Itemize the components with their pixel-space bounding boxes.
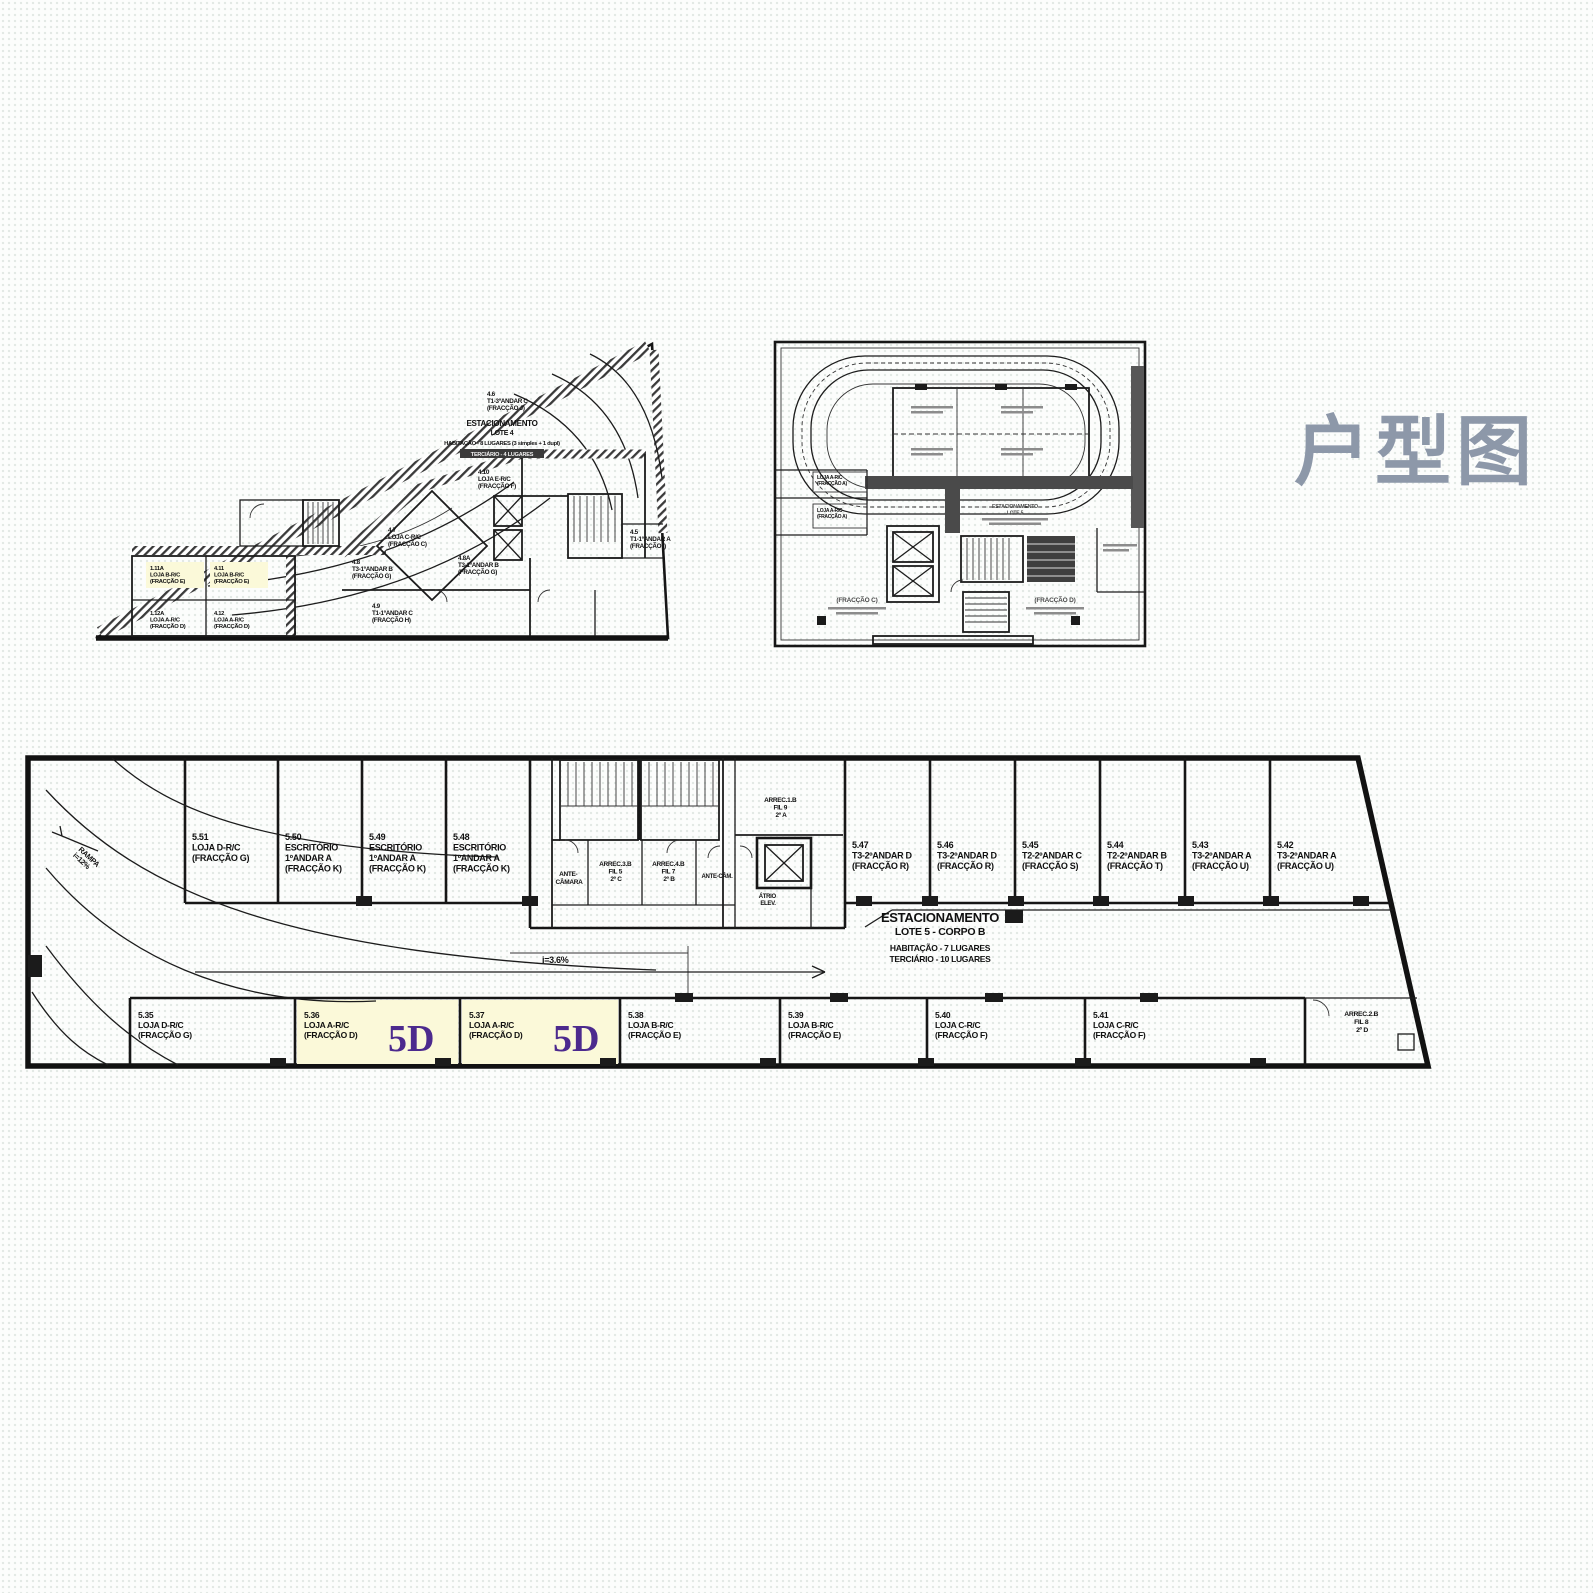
unit-label: 5.50 ESCRITÓRIO 1ºANDAR A (FRACÇÃO K) bbox=[285, 832, 342, 874]
unit-label: 5.51 LOJA D-R/C (FRACÇÃO G) bbox=[192, 832, 249, 863]
note-line: LOTE 5 - CORPO B bbox=[895, 926, 986, 938]
unit-label: 4.6 T1-3ºANDAR C (FRACÇÃO J) bbox=[487, 391, 529, 412]
unit-label: 5.45 T2-2ºANDAR C (FRACÇÃO S) bbox=[1022, 840, 1084, 871]
note-line: HABITAÇÃO - 8 LUGARES (3 simples + 1 dup… bbox=[444, 440, 560, 447]
unit-label: 5.48 ESCRITÓRIO 1ºANDAR A (FRACÇÃO K) bbox=[453, 832, 510, 874]
lote5-right-rooms bbox=[1097, 528, 1145, 592]
note-line: ESTACIONAMENTO bbox=[466, 419, 537, 428]
unit-label: 5.43 T3-2ºANDAR A (FRACÇÃO U) bbox=[1192, 840, 1253, 871]
lote5-left-rooms: LOJA A-R/C (FRACÇÃO A) LOJA A-R/C (FRACÇ… bbox=[775, 470, 867, 535]
unit-label: 5.42 T3-2ºANDAR A (FRACÇÃO U) bbox=[1277, 840, 1338, 871]
unit-label: 5.46 T3-2ºANDAR D (FRACÇÃO R) bbox=[937, 840, 999, 871]
ramp-arrow bbox=[52, 826, 98, 851]
stairs bbox=[560, 760, 638, 840]
room-label: ARREC.3.B FIL 5 2º C bbox=[599, 861, 633, 883]
fraction-label: (FRACÇÃO D) bbox=[1034, 595, 1075, 604]
corpo-b-parking-note: ESTACIONAMENTO LOTE 5 - CORPO B HABITAÇÃ… bbox=[881, 910, 999, 964]
unit-label: 4.8 T3-1ºANDAR B (FRACÇÃO G) bbox=[352, 559, 394, 580]
page-title: 户型图 bbox=[1294, 414, 1574, 490]
shop-label: LOJA A-R/C (FRACÇÃO A) bbox=[817, 475, 847, 487]
unit-label: 4.10 LOJA E-R/C (FRACÇÃO F) bbox=[478, 469, 516, 490]
note-line: TERCIÁRIO - 10 LUGARES bbox=[889, 954, 991, 964]
fraction-label: (FRACÇÃO C) bbox=[836, 595, 877, 604]
unit-label: 5.38 LOJA B-R/C (FRACÇÃO E) bbox=[628, 1010, 681, 1040]
unit-label: 5.35 LOJA D-R/C (FRACÇÃO G) bbox=[138, 1010, 192, 1040]
lote4-unit-labels: 4.6 T1-3ºANDAR C (FRACÇÃO J) 4.10 LOJA E… bbox=[150, 391, 672, 630]
unit-tag-5d: 5D bbox=[388, 1018, 434, 1060]
wall-strip bbox=[1131, 366, 1144, 528]
ramp-label: RAMPA i=12% bbox=[71, 845, 102, 876]
plan-lote4: ESTACIONAMENTO LOTE 4 HABITAÇÃO - 8 LUGA… bbox=[90, 328, 690, 663]
unit-label: 5.39 LOJA B-R/C (FRACÇÃO E) bbox=[788, 1010, 841, 1040]
unit-label: 5.40 LOJA C-R/C (FRACÇÃO F) bbox=[935, 1010, 988, 1040]
stairs bbox=[568, 494, 622, 558]
unit-label: 4.9 T1-1ºANDAR C (FRACÇÃO H) bbox=[372, 603, 414, 624]
room-label: ÁTRIO ELEV. bbox=[759, 893, 778, 907]
room-label: ARREC.2.B FIL 8 2º D bbox=[1344, 1011, 1380, 1034]
note-line: TERCIÁRIO - 4 LUGARES bbox=[471, 451, 534, 458]
note-line: ESTACIONAMENTO bbox=[992, 504, 1038, 510]
note-line: HABITAÇÃO - 7 LUGARES bbox=[890, 943, 991, 953]
stairs bbox=[961, 536, 1023, 582]
unit-label: 5.41 LOJA C-R/C (FRACÇÃO F) bbox=[1093, 1010, 1146, 1040]
plan-lote5: LOJA A-R/C (FRACÇÃO A) LOJA A-R/C (FRACÇ… bbox=[765, 330, 1155, 655]
stairs bbox=[641, 760, 719, 840]
room-label: ARREC.4.B FIL 7 2º B bbox=[652, 861, 686, 883]
unit-tag-5d: 5D bbox=[553, 1018, 599, 1060]
core-room-labels: ANTE- CÂMARA ARREC.3.B FIL 5 2º C ARREC.… bbox=[555, 797, 797, 907]
floorplan-sheet: ESTACIONAMENTO LOTE 4 HABITAÇÃO - 8 LUGA… bbox=[0, 0, 1593, 1593]
unit-label: 5.47 T3-2ºANDAR D (FRACÇÃO R) bbox=[852, 840, 914, 871]
unit-label: 5.44 T2-2ºANDAR B (FRACÇÃO T) bbox=[1107, 840, 1169, 871]
lote5-core bbox=[887, 526, 1075, 632]
plan-corpo-b: i=3.6% RAMPA i=12% bbox=[20, 750, 1435, 1080]
note-line: LOTE 5 bbox=[1007, 511, 1024, 517]
note-line: LOTE 4 bbox=[491, 430, 514, 437]
shop-label: LOJA A-R/C (FRACÇÃO A) bbox=[817, 508, 847, 520]
unit-label: 1.12A LOJA A-R/C (FRACÇÃO D) bbox=[150, 611, 186, 630]
parking-area: i=3.6% bbox=[195, 946, 825, 1002]
room-label: ANTE-CÂM. bbox=[702, 873, 734, 880]
lote5-lower-halls: (FRACÇÃO C) (FRACÇÃO D) bbox=[817, 595, 1084, 625]
note-line: ESTACIONAMENTO bbox=[881, 910, 999, 925]
stairs-dark bbox=[1027, 536, 1075, 582]
lote5-parking-block bbox=[893, 384, 1089, 480]
unit-label: 5.49 ESCRITÓRIO 1ºANDAR A (FRACÇÃO K) bbox=[369, 832, 426, 874]
corpo-b-outline bbox=[28, 758, 1428, 1066]
unit-label: 4.7 LOJA C-R/C (FRACÇÃO C) bbox=[388, 527, 427, 548]
room-label: ARREC.1.B FIL 9 2º A bbox=[764, 797, 798, 819]
corpo-b-core bbox=[552, 758, 843, 928]
room-label: ANTE- CÂMARA bbox=[555, 871, 583, 886]
lote4-outline bbox=[96, 344, 668, 638]
